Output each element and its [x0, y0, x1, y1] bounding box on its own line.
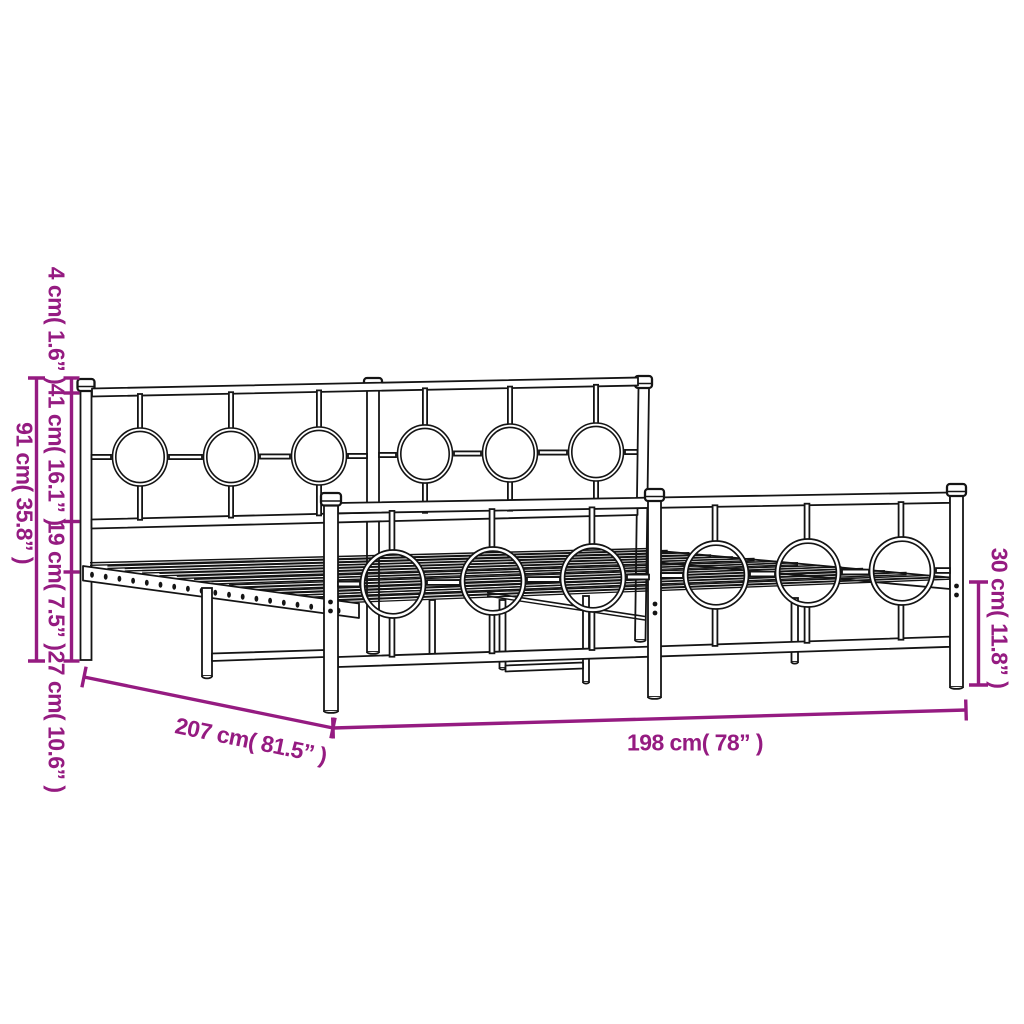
- svg-text:27 cm( 10.6” ): 27 cm( 10.6” ): [44, 651, 70, 793]
- svg-text:30 cm( 11.8” ): 30 cm( 11.8” ): [987, 548, 1013, 689]
- svg-text:198 cm( 78” ): 198 cm( 78” ): [627, 730, 763, 756]
- svg-text:4 cm( 1.6” ): 4 cm( 1.6” ): [44, 267, 70, 384]
- svg-text:91 cm( 35.8” ): 91 cm( 35.8” ): [12, 422, 38, 564]
- svg-text:19 cm( 7.5” ): 19 cm( 7.5” ): [44, 521, 70, 651]
- svg-text:41 cm( 16.1” ): 41 cm( 16.1” ): [44, 384, 70, 526]
